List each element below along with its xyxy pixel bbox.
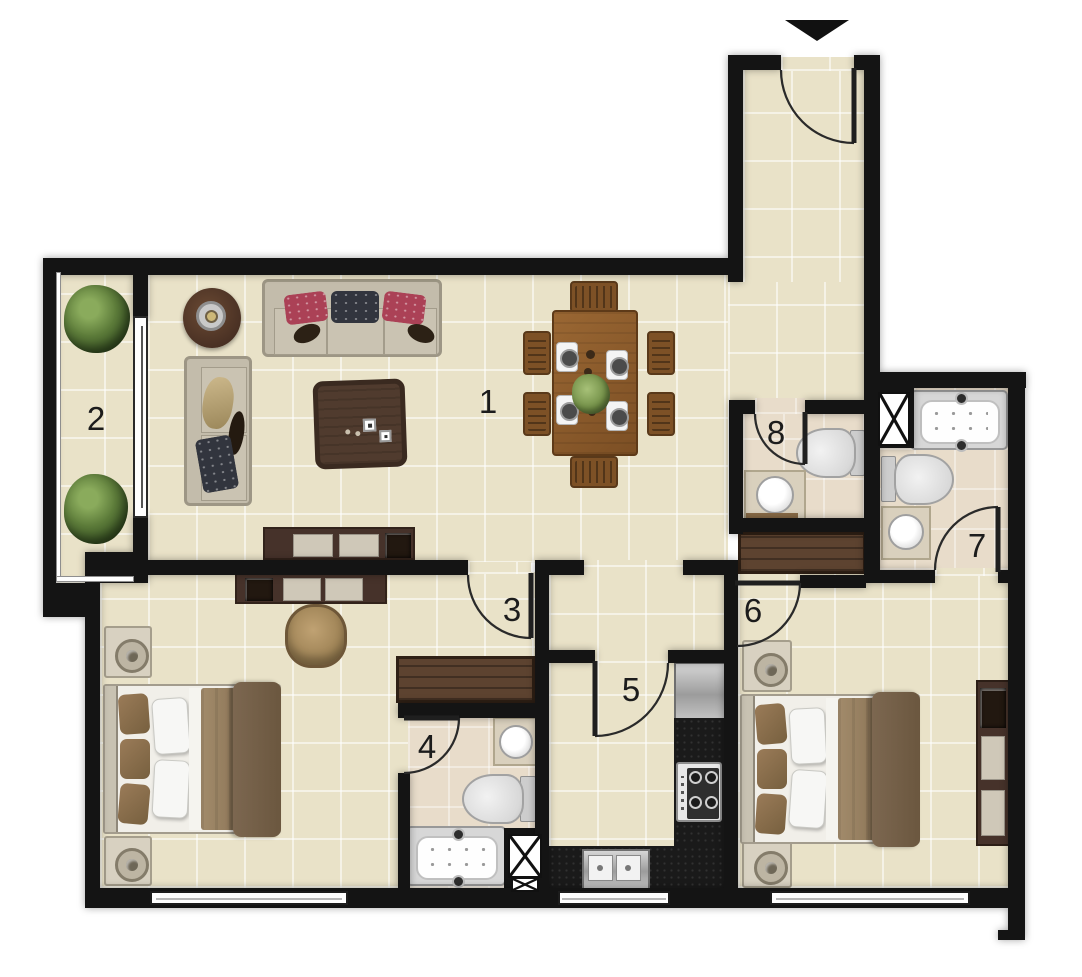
room-label-bedroom-right: 6 <box>744 592 762 630</box>
room-label-bathroom-4: 4 <box>418 728 436 766</box>
room-label-bedroom-left: 3 <box>503 591 521 629</box>
labels-layer: 1 2 3 4 5 6 7 8 <box>0 0 1082 977</box>
room-label-bathroom-8: 8 <box>767 414 785 452</box>
room-label-kitchen: 5 <box>622 671 640 709</box>
room-label-balcony: 2 <box>87 400 105 438</box>
room-label-bathroom-7: 7 <box>968 527 986 565</box>
floor-plan: 1 2 3 4 5 6 7 8 <box>0 0 1082 977</box>
room-label-living-dining: 1 <box>479 383 497 421</box>
